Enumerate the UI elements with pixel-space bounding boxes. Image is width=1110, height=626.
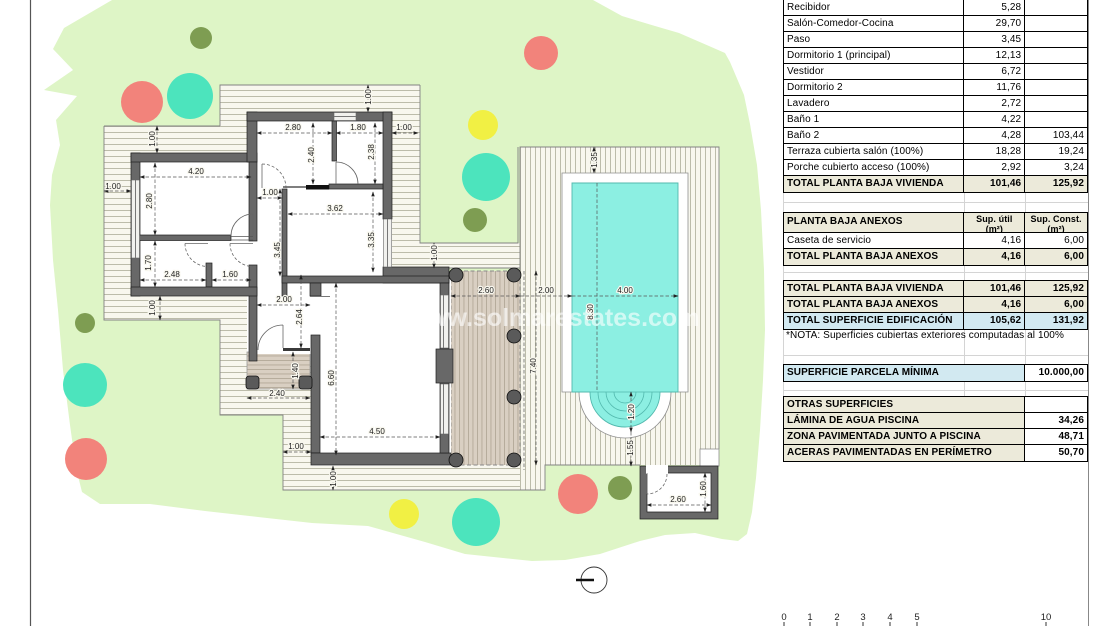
svg-text:2.40: 2.40 <box>269 389 285 398</box>
svg-text:1.00: 1.00 <box>396 123 412 132</box>
svg-text:1.00: 1.00 <box>105 182 121 191</box>
svg-text:6.60: 6.60 <box>327 370 336 386</box>
svg-text:1.60: 1.60 <box>699 481 708 497</box>
svg-text:4.20: 4.20 <box>188 167 204 176</box>
svg-text:4.50: 4.50 <box>369 427 385 436</box>
svg-text:2.40: 2.40 <box>307 147 316 163</box>
svg-text:1.70: 1.70 <box>144 255 153 271</box>
svg-text:2: 2 <box>834 612 839 623</box>
svg-text:7.40: 7.40 <box>529 358 538 374</box>
svg-text:2.48: 2.48 <box>164 270 180 279</box>
svg-text:4: 4 <box>887 612 892 623</box>
svg-text:2.64: 2.64 <box>295 309 304 325</box>
svg-text:2.00: 2.00 <box>538 286 554 295</box>
svg-text:www.solmarestates.com: www.solmarestates.com <box>408 304 700 332</box>
svg-text:1.00: 1.00 <box>288 442 304 451</box>
svg-text:3.35: 3.35 <box>367 232 376 248</box>
svg-text:1.20: 1.20 <box>627 404 636 420</box>
svg-text:1.35: 1.35 <box>590 152 599 168</box>
svg-text:2.60: 2.60 <box>478 286 494 295</box>
svg-text:1.00: 1.00 <box>262 188 278 197</box>
svg-text:1.40: 1.40 <box>291 363 300 379</box>
svg-text:10: 10 <box>1041 612 1052 623</box>
svg-text:2.80: 2.80 <box>145 193 154 209</box>
svg-text:1.60: 1.60 <box>222 270 238 279</box>
svg-text:2.60: 2.60 <box>670 495 686 504</box>
svg-text:5: 5 <box>914 612 919 623</box>
svg-text:3.45: 3.45 <box>273 242 282 258</box>
svg-text:1.55: 1.55 <box>626 440 635 456</box>
svg-text:1.00: 1.00 <box>148 131 157 147</box>
svg-text:4.00: 4.00 <box>617 286 633 295</box>
svg-text:1.00: 1.00 <box>430 245 439 261</box>
svg-text:3.62: 3.62 <box>327 204 343 213</box>
svg-text:2.80: 2.80 <box>285 123 301 132</box>
svg-text:1.00: 1.00 <box>148 300 157 316</box>
svg-text:1: 1 <box>807 612 812 623</box>
svg-text:2.00: 2.00 <box>276 295 292 304</box>
svg-text:1.00: 1.00 <box>364 89 373 105</box>
svg-text:1.80: 1.80 <box>350 123 366 132</box>
svg-text:0: 0 <box>781 612 786 623</box>
svg-text:1.00: 1.00 <box>329 471 338 487</box>
svg-text:2.38: 2.38 <box>367 144 376 160</box>
svg-text:3: 3 <box>860 612 865 623</box>
